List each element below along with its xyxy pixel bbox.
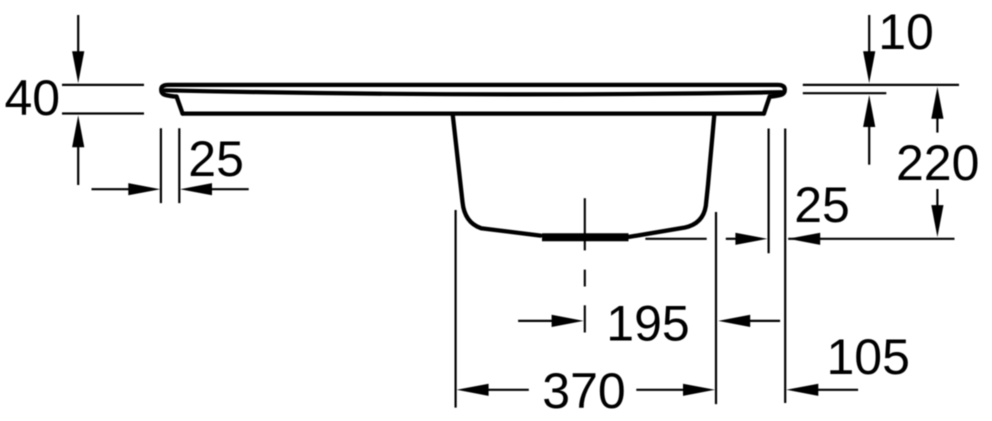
svg-text:105: 105 (827, 329, 910, 385)
svg-text:10: 10 (878, 4, 934, 60)
svg-text:25: 25 (188, 131, 244, 187)
svg-text:370: 370 (542, 363, 625, 419)
svg-text:40: 40 (5, 70, 61, 126)
svg-text:25: 25 (794, 177, 850, 233)
svg-text:220: 220 (896, 135, 979, 191)
svg-text:195: 195 (606, 296, 689, 352)
